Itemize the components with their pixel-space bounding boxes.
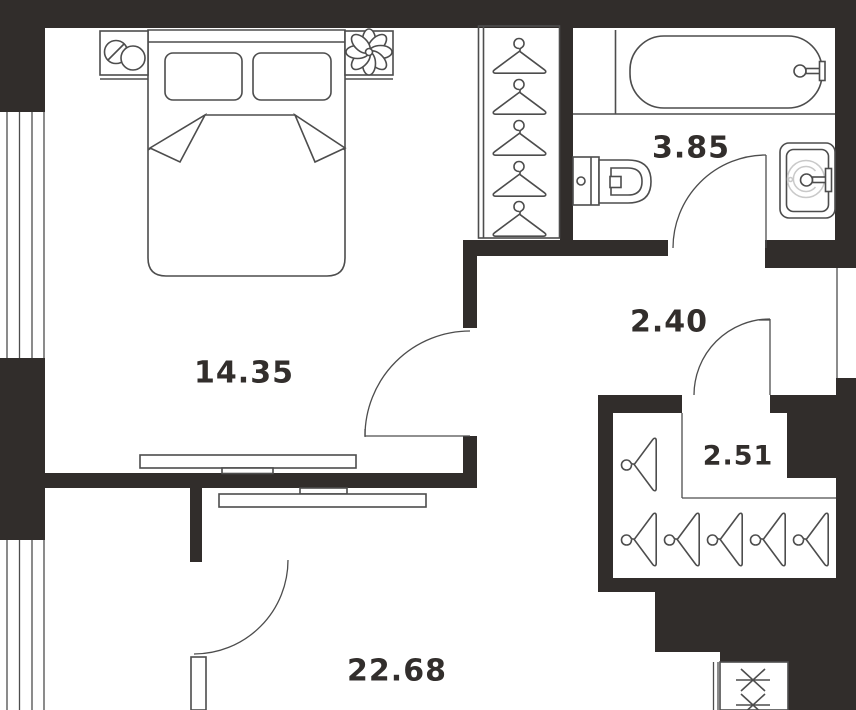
window-bedroom-left (7, 112, 44, 358)
bathtub-faucet-handle (820, 62, 826, 81)
window-living-left (7, 540, 44, 710)
sink-faucet-handle (826, 169, 832, 192)
bedroom-door (365, 331, 470, 437)
living-door-leaf (191, 657, 206, 710)
bathtub (573, 30, 835, 114)
hanger-icon (622, 513, 657, 565)
hanger-icon (751, 513, 786, 565)
flower-icon (346, 29, 392, 75)
room-label-bathroom: 3.85 (652, 131, 730, 166)
sink (780, 143, 835, 218)
room-label-closet: 2.51 (703, 441, 774, 472)
room-label-living: 22.68 (347, 654, 447, 689)
bedroom-wardrobe (479, 26, 560, 238)
hanger-icon (622, 438, 657, 490)
bedroom-door-arc (365, 331, 470, 436)
toilet (573, 157, 651, 205)
pillow-left (165, 53, 242, 100)
hanger-icon (493, 39, 545, 74)
bedroom-cabinet (140, 455, 356, 474)
plan-drawing (0, 0, 856, 710)
bathroom-door-arc (673, 155, 766, 248)
living-cabinet (219, 488, 426, 507)
nightstand-right (345, 29, 393, 79)
nightstand-left (100, 31, 148, 79)
living-door-arc (194, 560, 288, 654)
room-label-hallway: 2.40 (630, 305, 708, 340)
bathtub-drain (794, 65, 806, 77)
hanger-icon (493, 121, 545, 156)
living-door (191, 560, 288, 710)
hanger-icon (493, 162, 545, 197)
closet-interior (622, 413, 837, 566)
bathroom-door (673, 155, 766, 248)
hanger-icon (665, 513, 700, 565)
hanger-icon (493, 80, 545, 115)
bed (148, 30, 345, 276)
room-label-bedroom: 14.35 (194, 356, 294, 391)
pillow-right (253, 53, 331, 100)
hanger-icon (493, 202, 545, 237)
vent-shaft (714, 662, 789, 710)
floor-plan: 14.35 3.85 2.40 2.51 22.68 (0, 0, 856, 710)
toilet-button (577, 177, 585, 185)
hanger-icon (794, 513, 829, 565)
hanger-icon (708, 513, 743, 565)
sink-drain (801, 174, 813, 186)
